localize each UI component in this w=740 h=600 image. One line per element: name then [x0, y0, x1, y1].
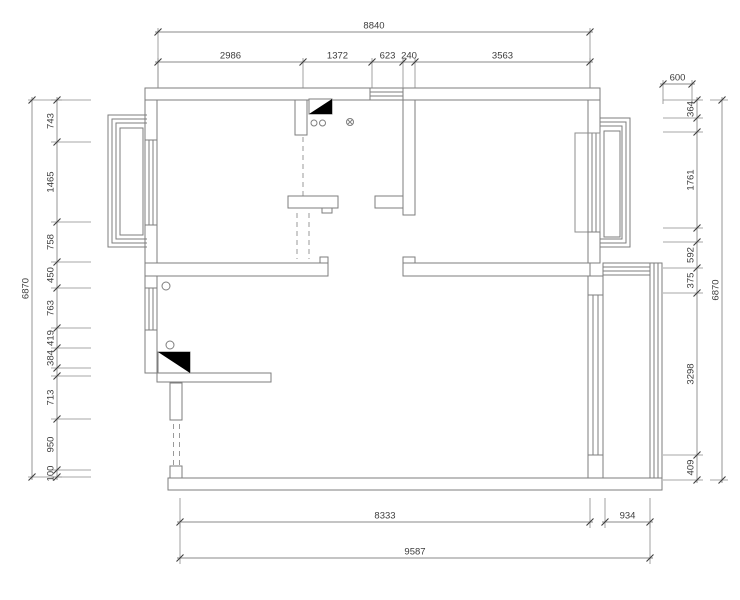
flue-shaft-living-icon [158, 352, 190, 373]
wall-left-2 [145, 225, 157, 288]
wall-bedroom1-bottom [145, 263, 328, 276]
wall-left-1 [145, 100, 157, 140]
dim-label-left-rooms: 713 [46, 390, 57, 406]
marker-circle-1 [162, 282, 170, 290]
hob-burner-icon-2 [320, 120, 326, 126]
wall-top-right [403, 88, 600, 100]
dim-label-right-rooms: 364 [686, 101, 697, 117]
dim-label-top-rooms: 623 [380, 51, 396, 62]
wall-lowerleft-lower [170, 466, 182, 478]
wall-right-1 [588, 100, 600, 133]
window-left-upper-icon [145, 140, 157, 225]
dim-label-top-rooms: 2986 [220, 51, 241, 62]
window-left-lower-icon [145, 288, 157, 330]
bay-window-left-icon [108, 115, 147, 247]
floor-drain-icon [347, 119, 354, 126]
floor-plan-canvas: 8840298613726232403563600687074314657584… [0, 0, 740, 600]
dim-label-left-rooms: 758 [46, 234, 57, 250]
dim-label-right-overhang: 600 [670, 73, 686, 84]
dim-label-left-rooms: 763 [46, 300, 57, 316]
window-right-icon [575, 133, 600, 232]
walls-group [108, 88, 662, 490]
dim-label-left-rooms: 743 [46, 113, 57, 129]
dim-label-left-rooms: 384 [46, 350, 57, 366]
wall-kitchen-bottom-right [375, 196, 403, 208]
dim-label-right-rooms: 375 [686, 273, 697, 289]
dim-label-top-rooms: 3563 [492, 51, 513, 62]
dim-label-bottom-balcony: 934 [620, 511, 636, 522]
dim-label-left-outer: 6870 [21, 278, 32, 299]
dim-label-right-outer: 6870 [711, 279, 722, 300]
wall-notch-3 [403, 257, 415, 263]
wall-lowerleft-upper [170, 383, 182, 420]
balcony-window-right-icon [650, 263, 662, 478]
wall-bedroom2-bottom [403, 263, 590, 276]
wall-bottom [168, 478, 662, 490]
wall-notch-1 [320, 257, 328, 263]
wall-bedroom1-right [295, 100, 307, 135]
dim-label-left-rooms: 450 [46, 267, 57, 283]
wall-kitchen-bottom-left [288, 196, 338, 208]
floor-plan-drawing: 8840298613726232403563600687074314657584… [0, 0, 740, 600]
wall-left-3 [145, 330, 157, 373]
window-top-icon [370, 88, 403, 100]
dim-label-bottom-rooms: 8333 [374, 511, 395, 522]
balcony-sliding-window-icon [588, 295, 603, 455]
dim-label-right-rooms: 592 [686, 247, 697, 263]
dim-label-right-rooms: 3298 [686, 363, 697, 384]
dim-label-left-rooms: 1465 [46, 171, 57, 192]
dim-label-left-rooms: 950 [46, 437, 57, 453]
wall-notch-2 [322, 208, 332, 213]
dim-label-right-rooms: 1761 [686, 169, 697, 190]
flue-shaft-kitchen-icon [309, 99, 332, 114]
dim-label-top-rooms: 240 [401, 51, 417, 62]
dim-label-bottom-overall: 9587 [404, 547, 425, 558]
dim-label-right-rooms: 409 [686, 460, 697, 476]
wall-right-2 [588, 232, 600, 263]
wall-balcony-bottom-pier [588, 455, 603, 478]
dim-label-left-rooms: 419 [46, 330, 57, 346]
dim-label-left-rooms: 100 [46, 466, 57, 482]
bay-window-right-icon [600, 118, 630, 247]
wall-balcony-top-pier [588, 276, 603, 295]
wall-partition-living [157, 373, 271, 382]
dim-label-top-rooms: 1372 [327, 51, 348, 62]
marker-circle-2 [166, 341, 174, 349]
wall-top-left [145, 88, 370, 100]
hob-burner-icon-1 [311, 120, 317, 126]
dim-label-top-overall: 8840 [363, 21, 384, 32]
wall-corridor-right [403, 100, 415, 215]
